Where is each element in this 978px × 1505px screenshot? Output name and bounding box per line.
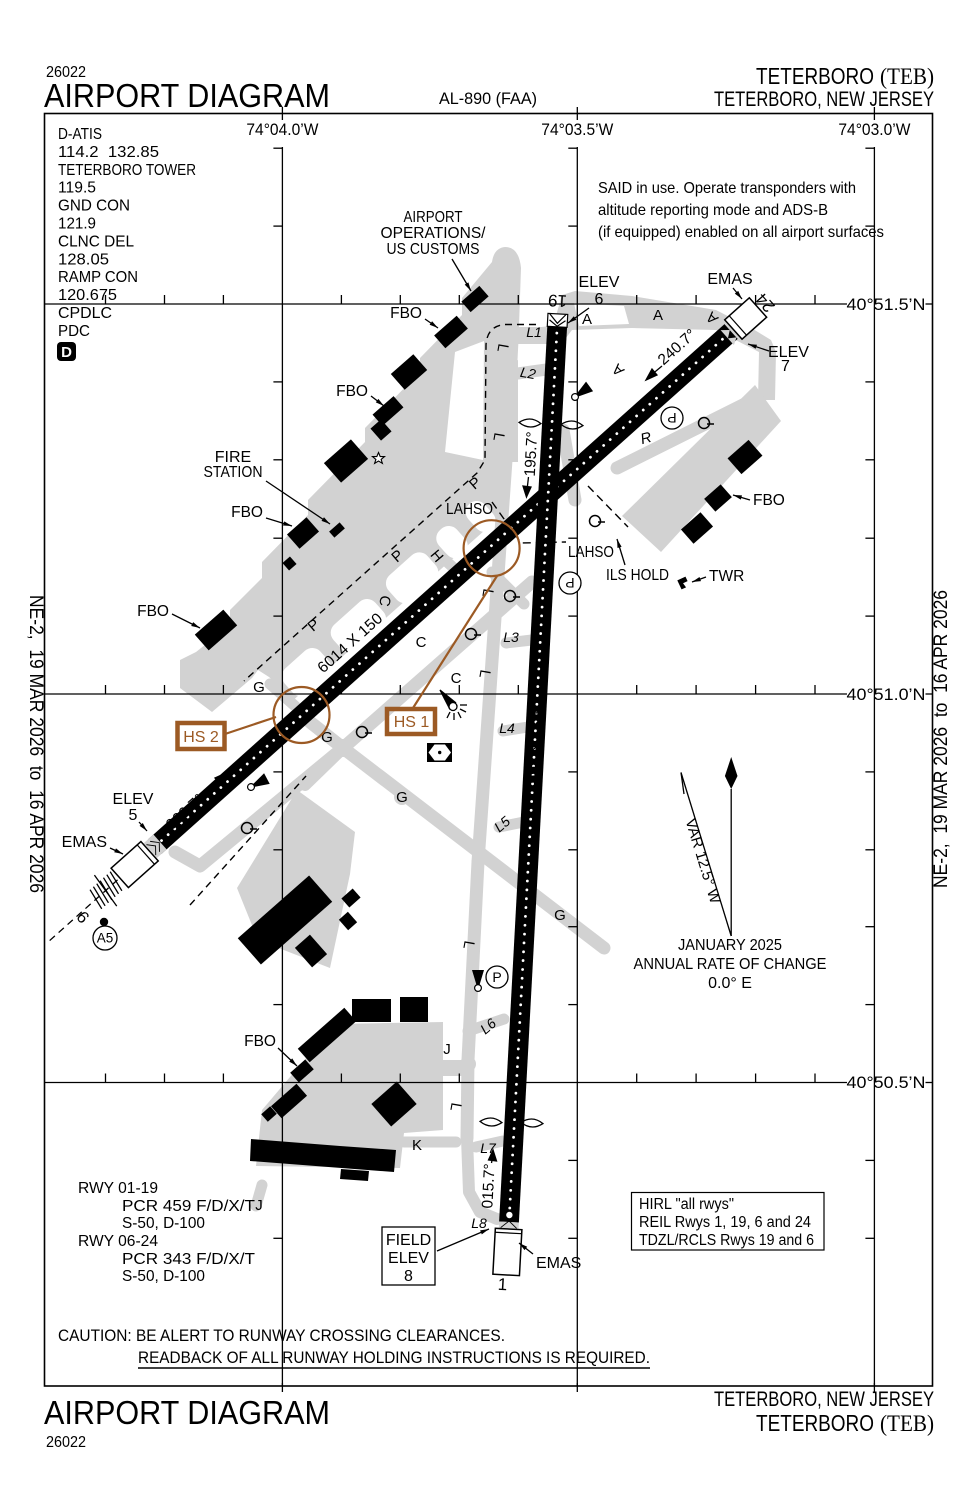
- svg-text:STATION: STATION: [204, 464, 263, 481]
- svg-text:L7: L7: [480, 1140, 497, 1156]
- svg-text:P: P: [565, 575, 574, 591]
- svg-text:FBO: FBO: [753, 492, 785, 509]
- svg-text:AIRPORT DIAGRAM: AIRPORT DIAGRAM: [44, 1394, 330, 1431]
- svg-text:128.05: 128.05: [58, 251, 109, 268]
- svg-text:6: 6: [595, 291, 604, 308]
- svg-text:1: 1: [497, 1275, 508, 1294]
- svg-text:L1: L1: [526, 324, 542, 340]
- svg-text:AIRPORT: AIRPORT: [404, 209, 463, 226]
- svg-text:TETERBORO, NEW JERSEY: TETERBORO, NEW JERSEY: [714, 88, 934, 111]
- svg-text:LAHSO: LAHSO: [446, 501, 493, 518]
- svg-text:TETERBORO TOWER: TETERBORO TOWER: [58, 162, 196, 179]
- svg-text:JANUARY 2025: JANUARY 2025: [678, 937, 782, 954]
- svg-text:AL-890 (FAA): AL-890 (FAA): [439, 89, 537, 108]
- svg-text:REIL Rwys 1, 19, 6 and 24: REIL Rwys 1, 19, 6 and 24: [639, 1214, 811, 1231]
- svg-text:L8: L8: [471, 1215, 487, 1231]
- svg-text:J: J: [255, 1197, 263, 1214]
- svg-text:PDC: PDC: [58, 323, 90, 340]
- svg-text:P: P: [667, 410, 676, 426]
- svg-text:AIRPORT DIAGRAM: AIRPORT DIAGRAM: [44, 77, 330, 114]
- svg-text:FBO: FBO: [390, 305, 422, 322]
- svg-text:TWR: TWR: [709, 568, 744, 585]
- svg-text:FBO: FBO: [244, 1033, 276, 1050]
- svg-text:altitude reporting mode and AD: altitude reporting mode and ADS-B: [598, 202, 828, 219]
- svg-text:C: C: [451, 670, 462, 687]
- svg-text:015.7°: 015.7°: [479, 1163, 498, 1209]
- svg-text:C: C: [416, 634, 427, 651]
- svg-text:D-ATIS: D-ATIS: [58, 126, 102, 143]
- svg-text:ELEV: ELEV: [579, 274, 620, 291]
- svg-text:G: G: [396, 789, 408, 806]
- svg-text:RWY 06-24: RWY 06-24: [78, 1233, 158, 1250]
- svg-text:FIELD: FIELD: [386, 1232, 431, 1249]
- svg-text:L2: L2: [519, 364, 537, 382]
- svg-text:TETERBORO: TETERBORO: [756, 1410, 874, 1436]
- svg-text:0.0° E: 0.0° E: [708, 975, 752, 992]
- svg-text:ELEV: ELEV: [388, 1250, 429, 1267]
- svg-text:74°04.0’W: 74°04.0’W: [246, 120, 318, 139]
- svg-text:(if equipped) enabled on all a: (if equipped) enabled on all airport sur…: [598, 224, 884, 241]
- svg-text:FBO: FBO: [336, 383, 368, 400]
- svg-text:(TEB): (TEB): [880, 64, 934, 89]
- svg-text:CLNC DEL: CLNC DEL: [58, 233, 134, 250]
- svg-text:8: 8: [404, 1268, 413, 1285]
- svg-text:NE-2, 19 MAR 2026 to 16 APR: NE-2, 19 MAR 2026 to 16 APR 2026: [25, 595, 46, 893]
- svg-text:G: G: [554, 907, 566, 924]
- svg-text:FBO: FBO: [137, 603, 169, 620]
- svg-text:A: A: [582, 311, 592, 328]
- svg-text:L3: L3: [503, 629, 519, 645]
- svg-text:ANNUAL RATE OF CHANGE: ANNUAL RATE OF CHANGE: [634, 956, 827, 973]
- svg-text:OPERATIONS/: OPERATIONS/: [381, 225, 487, 242]
- svg-text:19: 19: [548, 290, 568, 310]
- svg-text:40°51.0’N: 40°51.0’N: [847, 685, 926, 704]
- svg-text:S-50, D-100: S-50, D-100: [122, 1215, 205, 1232]
- svg-text:195.7°: 195.7°: [522, 431, 541, 477]
- svg-text:RAMP CON: RAMP CON: [58, 269, 138, 286]
- svg-text:5: 5: [129, 807, 138, 824]
- svg-text:120.675: 120.675: [58, 287, 117, 304]
- svg-text:RWY 01-19: RWY 01-19: [78, 1180, 158, 1197]
- svg-text:US CUSTOMS: US CUSTOMS: [387, 241, 480, 258]
- svg-text:HS 1: HS 1: [394, 714, 430, 731]
- svg-text:NE-2, 19 MAR 2026 to 16 APR: NE-2, 19 MAR 2026 to 16 APR 2026: [931, 590, 952, 888]
- svg-text:TDZL/RCLS Rwys 19 and 6: TDZL/RCLS Rwys 19 and 6: [639, 1232, 814, 1249]
- svg-text:ELEV: ELEV: [113, 791, 154, 808]
- svg-text:40°51.5’N: 40°51.5’N: [847, 295, 926, 314]
- svg-text:PCR 343 F/D/X/T: PCR 343 F/D/X/T: [122, 1251, 256, 1268]
- svg-text:CPDLC: CPDLC: [58, 305, 112, 322]
- svg-text:EMAS: EMAS: [536, 1255, 581, 1272]
- svg-text:L4: L4: [499, 720, 515, 736]
- svg-text:GND CON: GND CON: [58, 198, 130, 215]
- svg-text:K: K: [412, 1137, 422, 1154]
- svg-text:114.2 132.85: 114.2 132.85: [58, 144, 159, 161]
- svg-text:SAID in use. Operate transpond: SAID in use. Operate transponders with: [598, 180, 856, 197]
- svg-text:ILS HOLD: ILS HOLD: [606, 567, 669, 584]
- svg-text:J: J: [443, 1041, 451, 1058]
- svg-text:G: G: [253, 679, 265, 696]
- svg-text:READBACK OF ALL RUNWAY HOLDING: READBACK OF ALL RUNWAY HOLDING INSTRUCTI…: [138, 1349, 650, 1367]
- svg-text:FBO: FBO: [231, 504, 263, 521]
- svg-text:40°50.5’N: 40°50.5’N: [847, 1073, 926, 1092]
- svg-text:119.5: 119.5: [58, 180, 96, 197]
- svg-text:74°03.0’W: 74°03.0’W: [838, 120, 910, 139]
- svg-text:HIRL "all rwys": HIRL "all rwys": [639, 1196, 734, 1213]
- svg-text:(TEB): (TEB): [880, 1411, 934, 1436]
- svg-text:26022: 26022: [46, 1434, 86, 1451]
- svg-text:7: 7: [781, 358, 790, 375]
- svg-text:PCR 459 F/D/X/T: PCR 459 F/D/X/T: [122, 1198, 256, 1215]
- svg-text:121.9: 121.9: [58, 216, 96, 233]
- svg-text:74°03.5’W: 74°03.5’W: [541, 120, 613, 139]
- svg-text:EMAS: EMAS: [62, 834, 107, 851]
- svg-text:HS 2: HS 2: [183, 729, 219, 746]
- svg-text:A: A: [653, 307, 663, 324]
- svg-text:P: P: [492, 969, 501, 985]
- svg-text:EMAS: EMAS: [707, 271, 752, 288]
- svg-text:LAHSO: LAHSO: [568, 544, 614, 561]
- svg-text:S-50, D-100: S-50, D-100: [122, 1268, 205, 1285]
- svg-text:A5: A5: [97, 931, 114, 946]
- svg-text:TETERBORO, NEW JERSEY: TETERBORO, NEW JERSEY: [714, 1388, 934, 1411]
- svg-text:CAUTION: BE ALERT TO RUNWAY CR: CAUTION: BE ALERT TO RUNWAY CROSSING CLE…: [58, 1327, 505, 1345]
- svg-text:D: D: [61, 344, 72, 361]
- svg-text:TETERBORO: TETERBORO: [756, 63, 874, 89]
